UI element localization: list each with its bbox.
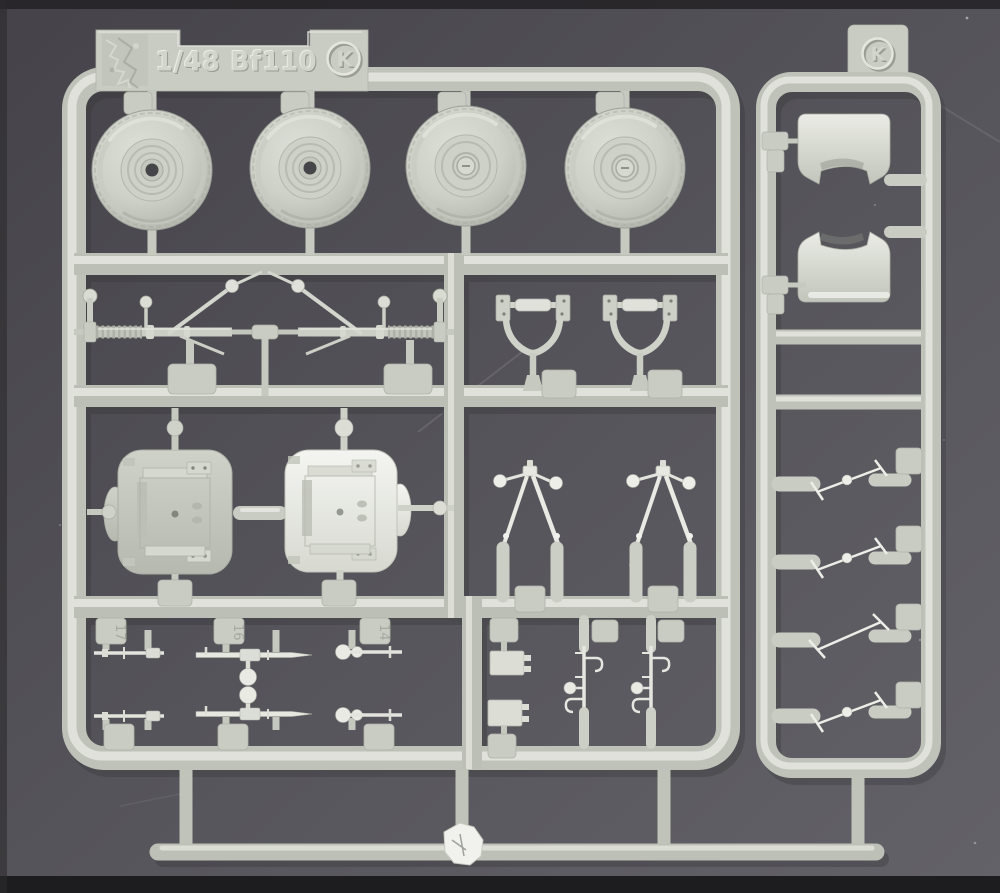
label-text: 1/48 Bf110 1/48 Bf110 1/48 Bf110 xyxy=(155,46,319,79)
pad-digit-17: 17 xyxy=(112,624,127,641)
pad-digit-16: 16 xyxy=(230,624,245,641)
yoke-number-pad-1 xyxy=(542,370,576,398)
plate-number-pad-1 xyxy=(158,580,192,606)
wheel-part-4 xyxy=(565,108,685,228)
box-nub xyxy=(522,716,529,722)
strut-number-pad-left xyxy=(168,364,216,394)
pad-digit-14: 14 xyxy=(376,624,391,641)
equipment-box-part-2 xyxy=(488,700,522,726)
v-strut-number-pad-1 xyxy=(515,586,545,612)
box-nub xyxy=(522,704,529,710)
gun-ball-1 xyxy=(240,669,257,686)
label-text-face: 1/48 Bf110 xyxy=(156,47,318,78)
wheel-part-1 xyxy=(92,110,212,230)
mold-letter-side-face: K xyxy=(871,44,887,66)
sprue-photo-canvas: 1/48 Bf110 1/48 Bf110 1/48 Bf110 K K xyxy=(0,0,1000,893)
yoke-number-pad-2 xyxy=(648,370,682,398)
mold-letter-main-face: K xyxy=(337,48,354,72)
strut-number-pad-right xyxy=(384,364,432,394)
sprue-photo: 1/48 Bf110 1/48 Bf110 1/48 Bf110 K K xyxy=(0,0,1000,893)
wheel-part-3 xyxy=(406,106,526,226)
equipment-box-part-1 xyxy=(490,651,524,675)
wheel-part-2 xyxy=(250,108,370,228)
box-nub xyxy=(524,655,531,661)
box-nub xyxy=(524,666,531,672)
plate-number-pad-2 xyxy=(322,580,356,606)
v-strut-number-pad-2 xyxy=(648,586,678,612)
box-number-pad-top xyxy=(490,618,518,642)
strut-center-coupler xyxy=(252,325,278,339)
sight-number-pad-1 xyxy=(592,620,618,642)
sight-number-pad-2 xyxy=(658,620,684,642)
crest-emboss xyxy=(102,34,148,88)
box-number-pad-bottom xyxy=(488,734,516,758)
gun-ball-2 xyxy=(240,687,257,704)
